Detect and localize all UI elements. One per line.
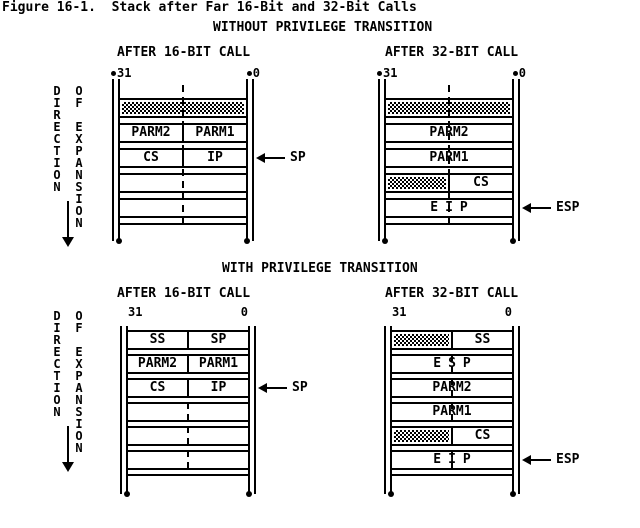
center-dashed-line bbox=[451, 330, 453, 476]
stack-with-privilege-32bit: 310SSESPPARM2PARM1CSEIPESP bbox=[384, 307, 520, 502]
center-dashed-line bbox=[448, 85, 450, 225]
section-1-heading: WITHOUT PRIVILEGE TRANSITION bbox=[213, 21, 432, 34]
expansion-letter: N bbox=[75, 442, 83, 454]
endpoint-dot bbox=[111, 71, 116, 76]
stack-cell: SS bbox=[451, 332, 512, 348]
figure-canvas: Figure 16-1. Stack after Far 16-Bit and … bbox=[0, 0, 640, 528]
down-arrow-icon bbox=[62, 426, 74, 472]
stack-cell: CS bbox=[451, 428, 512, 444]
pointer-label: ESP bbox=[556, 455, 579, 465]
down-arrow-shaft bbox=[67, 201, 69, 237]
stack-cell: IP bbox=[182, 150, 246, 166]
figure-title: Figure 16-1. Stack after Far 16-Bit and … bbox=[2, 1, 417, 14]
stack-cell-label: SS bbox=[150, 333, 166, 347]
bit-0-label: 0 bbox=[241, 307, 248, 318]
pointer-arrow-shaft bbox=[265, 157, 285, 159]
pointer-arrow-shaft bbox=[531, 459, 551, 461]
bit-31-label: 31 bbox=[111, 68, 131, 79]
stack-cell-label: PARM2 bbox=[138, 357, 177, 371]
expansion-word-column: OFEXPANSION bbox=[75, 85, 83, 229]
pointer-label: ESP bbox=[556, 203, 579, 213]
stack-cell-label: CS bbox=[475, 429, 491, 443]
stack-with-privilege-16bit: 310SSSPPARM2PARM1CSIPSP bbox=[120, 307, 256, 502]
left-arrow-icon bbox=[258, 383, 267, 393]
direction-word-column: DIRECTION bbox=[53, 85, 61, 193]
bit-0-label: 0 bbox=[247, 68, 260, 79]
stack-cell: SP bbox=[187, 332, 248, 348]
endpoint-dot bbox=[513, 71, 518, 76]
section-2-col-2-heading: AFTER 32-BIT CALL bbox=[385, 287, 518, 300]
section-2-heading: WITH PRIVILEGE TRANSITION bbox=[222, 262, 418, 275]
section-2-col-1-heading: AFTER 16-BIT CALL bbox=[117, 287, 250, 300]
bit-31-text: 31 bbox=[128, 305, 142, 319]
left-arrow-icon bbox=[522, 203, 531, 213]
stack-cell: IP bbox=[187, 380, 248, 396]
pointer-label: SP bbox=[290, 153, 306, 163]
left-arrow-icon bbox=[522, 455, 531, 465]
direction-of-expansion-block: DIRECTIONOFEXPANSION bbox=[53, 310, 87, 480]
expansion-word-column: OFEXPANSION bbox=[75, 310, 83, 454]
bit-31-label: 31 bbox=[128, 307, 142, 318]
stack-pointer: SP bbox=[256, 153, 306, 163]
bit-31-text: 31 bbox=[117, 66, 131, 80]
stack-without-privilege-16bit: 310PARM2PARM1CSIPSP bbox=[112, 68, 254, 248]
bit-0-label: 0 bbox=[513, 68, 526, 79]
pointer-arrow-shaft bbox=[267, 387, 287, 389]
stack-cell-label: IP bbox=[211, 381, 227, 395]
stack-cell-label: IP bbox=[207, 151, 223, 165]
stack-cell-label: SP bbox=[211, 333, 227, 347]
bit-position-labels: 310 bbox=[120, 307, 256, 318]
pointer-arrow-shaft bbox=[531, 207, 551, 209]
center-dashed-line bbox=[182, 85, 184, 225]
endpoint-dot bbox=[388, 491, 394, 497]
section-1-col-2-heading: AFTER 32-BIT CALL bbox=[385, 46, 518, 59]
bit-position-labels: 310 bbox=[112, 68, 254, 79]
endpoint-dot bbox=[377, 71, 382, 76]
endpoint-dot bbox=[244, 238, 250, 244]
expansion-letter: F bbox=[75, 97, 83, 109]
down-arrow-shaft bbox=[67, 426, 69, 462]
stack-cell-label: PARM2 bbox=[131, 126, 170, 140]
bit-position-labels: 310 bbox=[384, 307, 520, 318]
hatched-cell bbox=[392, 428, 451, 444]
bit-31-label: 31 bbox=[377, 68, 397, 79]
bit-0-text: 0 bbox=[519, 66, 526, 80]
hatched-cell bbox=[386, 175, 448, 191]
left-arrow-icon bbox=[256, 153, 265, 163]
stack-pointer: ESP bbox=[522, 455, 579, 465]
stack-cell: PARM2 bbox=[120, 125, 182, 141]
direction-letter: N bbox=[53, 181, 61, 193]
endpoint-dot bbox=[124, 491, 130, 497]
direction-of-expansion-block: DIRECTIONOFEXPANSION bbox=[53, 85, 87, 255]
down-arrow-head bbox=[62, 462, 74, 472]
section-1-col-1-heading: AFTER 16-BIT CALL bbox=[117, 46, 250, 59]
bit-0-label: 0 bbox=[505, 307, 512, 318]
stack-cell: PARM2 bbox=[128, 356, 187, 372]
hatched-cell bbox=[392, 332, 451, 348]
center-dashed-line bbox=[187, 330, 189, 476]
stack-cell-label: CS bbox=[143, 151, 159, 165]
stack-without-privilege-32bit: 310PARM2PARM1CSEIPESP bbox=[378, 68, 520, 248]
endpoint-dot bbox=[510, 238, 516, 244]
stack-cell: SS bbox=[128, 332, 187, 348]
endpoint-dot bbox=[246, 491, 252, 497]
stack-cell-label: PARM1 bbox=[195, 126, 234, 140]
bit-0-text: 0 bbox=[241, 305, 248, 319]
direction-letter: N bbox=[53, 406, 61, 418]
bit-0-text: 0 bbox=[253, 66, 260, 80]
bit-0-text: 0 bbox=[505, 305, 512, 319]
pointer-label: SP bbox=[292, 383, 308, 393]
endpoint-dot bbox=[510, 491, 516, 497]
stack-cell: PARM1 bbox=[182, 125, 246, 141]
expansion-letter: N bbox=[75, 217, 83, 229]
down-arrow-icon bbox=[62, 201, 74, 247]
stack-pointer: ESP bbox=[522, 203, 579, 213]
bit-position-labels: 310 bbox=[378, 68, 520, 79]
stack-cell-label: PARM1 bbox=[199, 357, 238, 371]
stack-cell: CS bbox=[448, 175, 512, 191]
stack-pointer: SP bbox=[258, 383, 308, 393]
endpoint-dot bbox=[382, 238, 388, 244]
direction-word-column: DIRECTION bbox=[53, 310, 61, 418]
stack-cell-label: CS bbox=[473, 176, 489, 190]
stack-cell-label: SS bbox=[475, 333, 491, 347]
bit-31-text: 31 bbox=[392, 305, 406, 319]
endpoint-dot bbox=[247, 71, 252, 76]
down-arrow-head bbox=[62, 237, 74, 247]
bit-31-text: 31 bbox=[383, 66, 397, 80]
expansion-letter: F bbox=[75, 322, 83, 334]
stack-cell: CS bbox=[128, 380, 187, 396]
bit-31-label: 31 bbox=[392, 307, 406, 318]
stack-cell: CS bbox=[120, 150, 182, 166]
endpoint-dot bbox=[116, 238, 122, 244]
stack-cell: PARM1 bbox=[187, 356, 248, 372]
stack-cell-label: CS bbox=[150, 381, 166, 395]
